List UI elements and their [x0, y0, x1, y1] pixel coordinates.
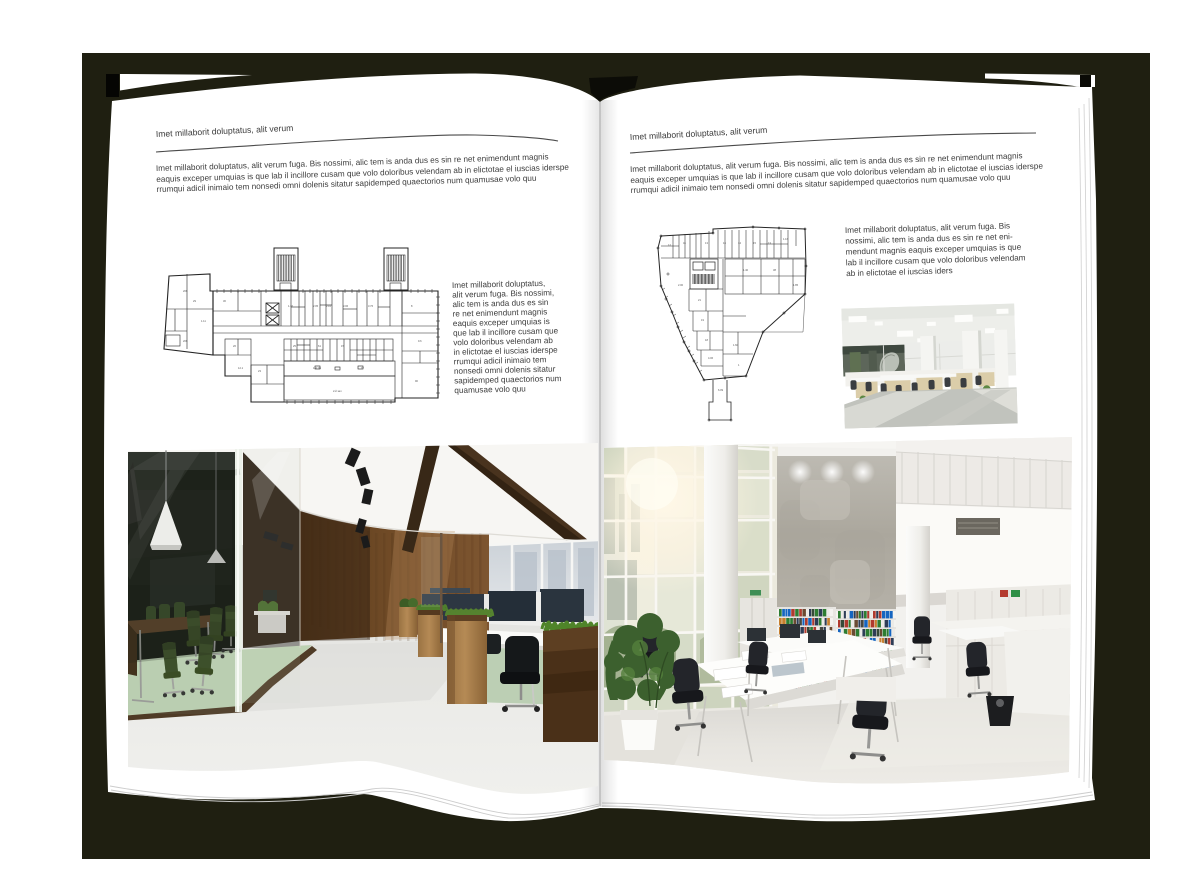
svg-text:142.05: 142.05	[313, 366, 321, 370]
svg-text:6.09: 6.09	[718, 388, 724, 392]
svg-text:quamusae volo quu: quamusae volo quu	[454, 384, 526, 395]
svg-text:1.85: 1.85	[793, 283, 799, 287]
svg-text:2.10: 2.10	[326, 304, 332, 308]
svg-text:1.16: 1.16	[783, 237, 789, 241]
svg-text:3.06: 3.06	[343, 304, 349, 308]
svg-text:2.00: 2.00	[678, 283, 684, 287]
svg-text:1.60: 1.60	[733, 343, 739, 347]
svg-text:1.11: 1.11	[201, 319, 206, 323]
svg-text:1.10: 1.10	[288, 304, 294, 308]
svg-text:12.1: 12.1	[238, 366, 244, 370]
svg-text:1.40: 1.40	[743, 268, 749, 272]
svg-text:9.6: 9.6	[418, 339, 422, 343]
svg-text:2.05: 2.05	[313, 304, 319, 308]
svg-text:206: 206	[183, 289, 188, 293]
svg-text:2-й зал: 2-й зал	[333, 389, 342, 393]
svg-text:206: 206	[183, 339, 188, 343]
svg-text:4.06: 4.06	[708, 356, 714, 360]
svg-text:3.76: 3.76	[368, 304, 374, 308]
